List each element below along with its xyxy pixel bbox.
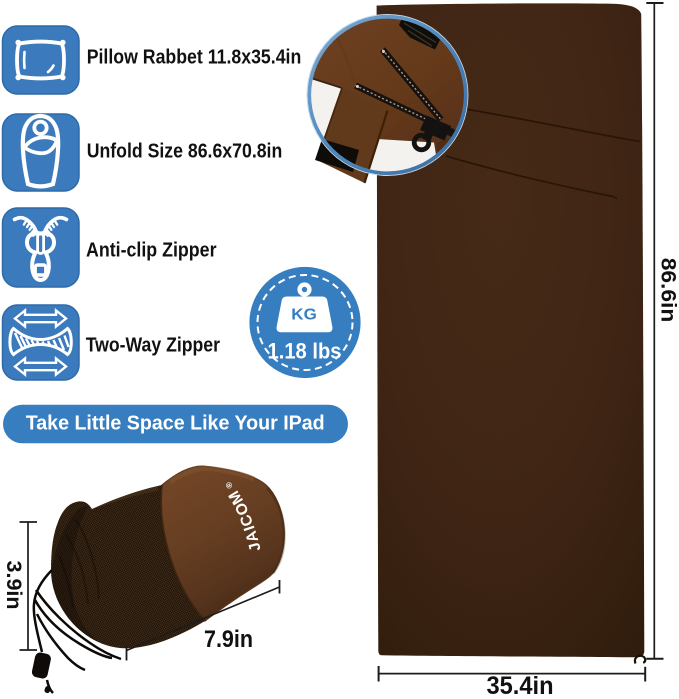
svg-text:1.18 lbs: 1.18 lbs [268, 338, 342, 363]
svg-text:86.6in: 86.6in [657, 258, 679, 323]
svg-text:Take Little Space Like Your IP: Take Little Space Like Your IPad [26, 412, 325, 434]
svg-text:Pillow Rabbet 11.8x35.4in: Pillow Rabbet 11.8x35.4in [87, 47, 302, 69]
svg-text:7.9in: 7.9in [204, 626, 253, 653]
svg-text:KG: KG [291, 306, 317, 323]
svg-text:3.9in: 3.9in [2, 561, 25, 610]
svg-text:Unfold Size 86.6x70.8in: Unfold Size 86.6x70.8in [87, 141, 283, 163]
svg-text:Anti-clip Zipper: Anti-clip Zipper [86, 240, 217, 262]
svg-text:35.4in: 35.4in [487, 672, 554, 699]
svg-text:Two-Way Zipper: Two-Way Zipper [86, 335, 220, 357]
